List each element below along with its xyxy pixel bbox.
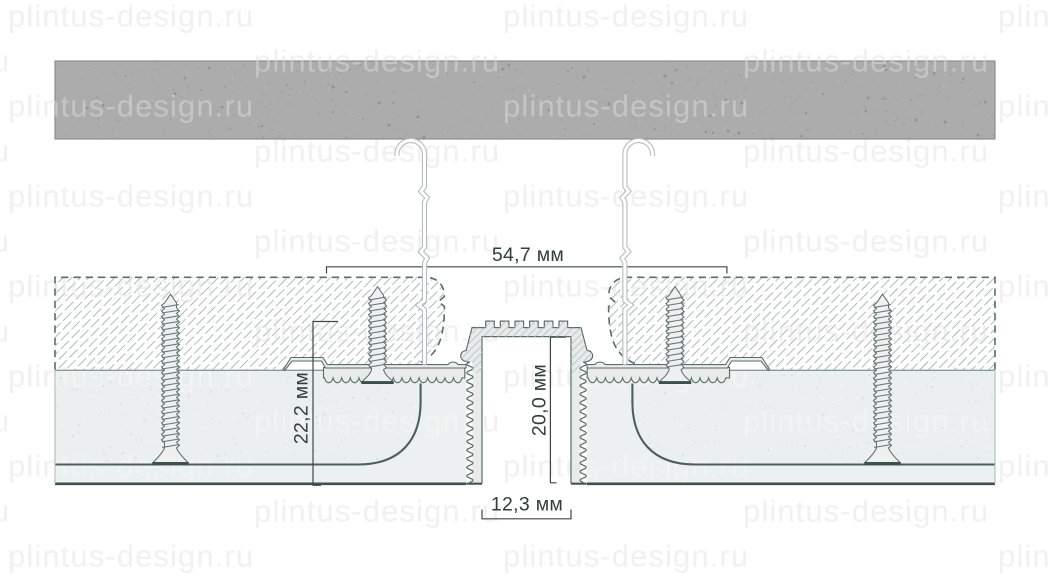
svg-text:plintus-design.ru: plintus-design.ru: [743, 494, 989, 529]
svg-text:plintus-design.ru: plintus-design.ru: [8, 539, 254, 574]
svg-text:plintus-design.ru: plintus-design.ru: [998, 179, 1050, 214]
svg-text:plintus-design.ru: plintus-design.ru: [0, 314, 10, 349]
svg-text:plintus-design.ru: plintus-design.ru: [254, 134, 500, 169]
svg-text:plintus-design.ru: plintus-design.ru: [743, 44, 989, 79]
svg-text:plintus-design.ru: plintus-design.ru: [8, 359, 254, 394]
svg-text:plintus-design.ru: plintus-design.ru: [998, 269, 1050, 304]
svg-text:plintus-design.ru: plintus-design.ru: [743, 404, 989, 439]
svg-text:12,3 мм: 12,3 мм: [491, 494, 563, 516]
svg-text:plintus-design.ru: plintus-design.ru: [998, 359, 1050, 394]
svg-text:plintus-design.ru: plintus-design.ru: [254, 494, 500, 529]
svg-text:20,0 мм: 20,0 мм: [529, 364, 551, 436]
svg-text:plintus-design.ru: plintus-design.ru: [503, 449, 749, 484]
svg-text:plintus-design.ru: plintus-design.ru: [254, 224, 500, 259]
svg-text:plintus-design.ru: plintus-design.ru: [503, 0, 749, 34]
svg-text:plintus-design.ru: plintus-design.ru: [0, 404, 10, 439]
svg-text:plintus-design.ru: plintus-design.ru: [0, 134, 10, 169]
svg-text:plintus-design.ru: plintus-design.ru: [8, 179, 254, 214]
svg-text:plintus-design.ru: plintus-design.ru: [503, 89, 749, 124]
svg-text:plintus-design.ru: plintus-design.ru: [8, 449, 254, 484]
svg-text:plintus-design.ru: plintus-design.ru: [998, 449, 1050, 484]
svg-text:54,7 мм: 54,7 мм: [492, 244, 564, 266]
svg-text:plintus-design.ru: plintus-design.ru: [254, 44, 500, 79]
svg-text:plintus-design.ru: plintus-design.ru: [743, 134, 989, 169]
svg-text:plintus-design.ru: plintus-design.ru: [0, 44, 10, 79]
svg-text:plintus-design.ru: plintus-design.ru: [503, 539, 749, 574]
svg-text:plintus-design.ru: plintus-design.ru: [998, 539, 1050, 574]
svg-text:plintus-design.ru: plintus-design.ru: [743, 314, 989, 349]
svg-text:22,2 мм: 22,2 мм: [291, 372, 313, 444]
svg-text:plintus-design.ru: plintus-design.ru: [8, 89, 254, 124]
svg-text:plintus-design.ru: plintus-design.ru: [8, 269, 254, 304]
svg-text:plintus-design.ru: plintus-design.ru: [743, 224, 989, 259]
svg-text:plintus-design.ru: plintus-design.ru: [8, 0, 254, 34]
svg-text:plintus-design.ru: plintus-design.ru: [0, 224, 10, 259]
svg-text:plintus-design.ru: plintus-design.ru: [0, 494, 10, 529]
svg-text:plintus-design.ru: plintus-design.ru: [998, 89, 1050, 124]
svg-text:plintus-design.ru: plintus-design.ru: [998, 0, 1050, 34]
